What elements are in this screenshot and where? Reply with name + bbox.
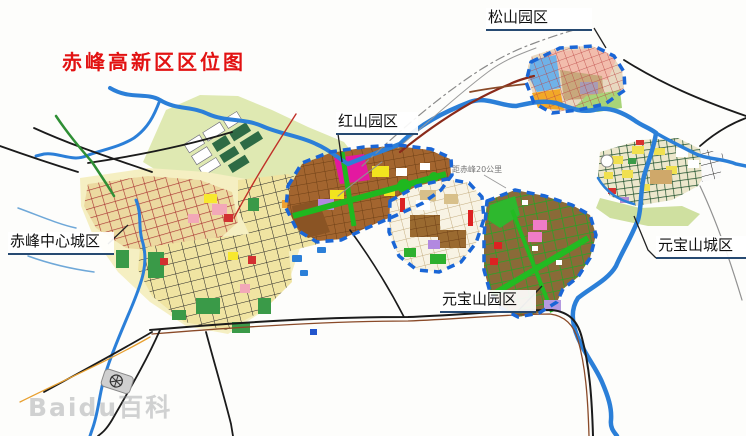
river-west-branch xyxy=(36,100,160,158)
stream-left-1 xyxy=(18,208,76,228)
songshan-leader-line xyxy=(594,28,606,48)
road-songshan-east xyxy=(624,60,746,116)
yuanbaoshan-city-area xyxy=(596,138,724,226)
road-songshan-west xyxy=(470,84,526,92)
road-west xyxy=(0,146,78,172)
page-title: 赤峰高新区区位图 xyxy=(62,46,246,75)
label-yuanbaoshan-park: 元宝山园区 xyxy=(440,290,536,313)
distance-annotation: 距赤峰20公里 xyxy=(452,164,502,175)
label-yuanbaoshan-city: 元宝山城区 xyxy=(656,236,746,259)
label-songshan-park: 松山园区 xyxy=(486,8,592,31)
station-marker xyxy=(310,329,317,335)
annotation-leader-line xyxy=(484,175,506,188)
road-ybs-ne xyxy=(700,118,746,146)
stream-left-2 xyxy=(28,256,94,272)
label-hongshan-park: 红山园区 xyxy=(336,112,418,135)
label-chifeng-central-city: 赤峰中心城区 xyxy=(8,232,114,255)
watermark: Baidu百科 xyxy=(28,388,172,424)
road-south-1 xyxy=(206,332,233,436)
map-image: 赤峰高新区区位图 松山园区 红山园区 赤峰中心城区 元宝山园区 元宝山城区 距赤… xyxy=(0,0,746,436)
road-gray-ne xyxy=(398,48,536,148)
